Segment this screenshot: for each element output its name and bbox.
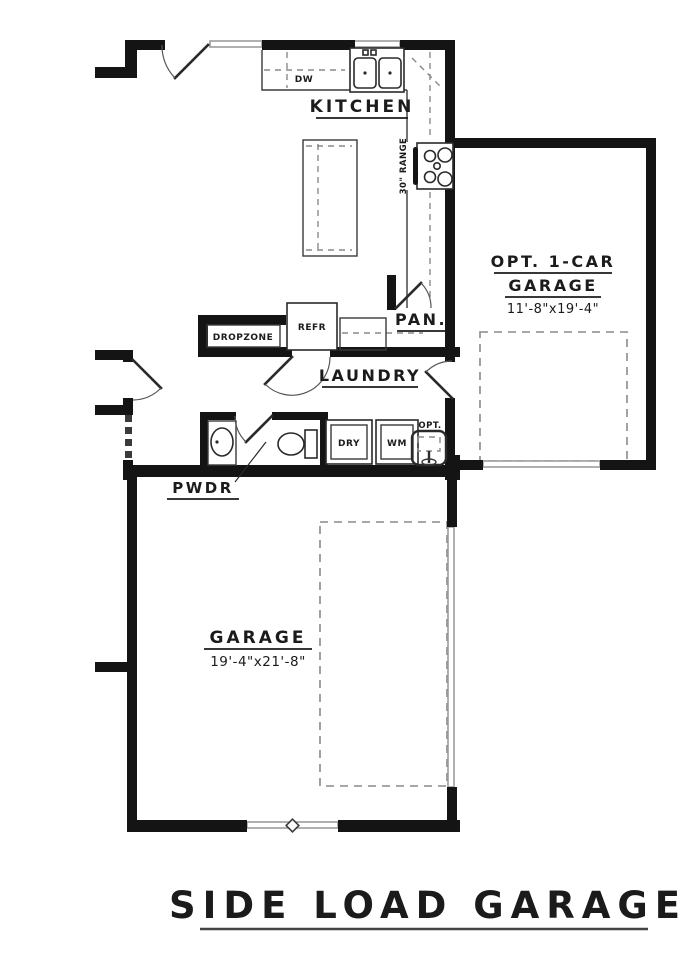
- wall-opt-garage-right: [646, 138, 656, 470]
- kitchen-label-group: KITCHEN: [310, 97, 415, 118]
- range-label: 30" RANGE: [399, 138, 409, 195]
- laundry-label-group: LAUNDRY: [319, 366, 421, 387]
- hall-door: [133, 360, 161, 400]
- garage-dimensions: 19'-4"x21'-8": [210, 654, 306, 670]
- garage-car-space-outline: [320, 522, 447, 786]
- wall-garage-bottom-right: [338, 820, 460, 832]
- kitchen-sink: [350, 48, 404, 92]
- wall: [123, 398, 133, 415]
- powder-label: PWDR: [172, 479, 234, 497]
- entry-door: [162, 45, 208, 78]
- opt-garage-label-line1: OPT. 1-CAR: [491, 252, 616, 271]
- dishwasher-label: DW: [295, 75, 313, 85]
- dryer-label: DRY: [338, 439, 360, 449]
- wall-pantry-jamb: [387, 275, 396, 310]
- floor-plan-drawing: KITCHEN OPT. 1-CAR GARAGE 11'-8"x19'-4" …: [0, 0, 700, 979]
- kitchen-island: [303, 140, 357, 256]
- pantry-label: PAN.: [395, 310, 447, 329]
- wall-opt-garage-bottom: [600, 460, 656, 470]
- wall-opt-garage-top: [455, 138, 656, 148]
- garage-window-marker: [286, 819, 299, 832]
- wall: [262, 40, 355, 50]
- wall-laundry-top-left: [198, 347, 292, 357]
- kitchen-label: KITCHEN: [310, 97, 415, 117]
- wall-dropzone-top: [198, 315, 286, 325]
- floor-plan-page: KITCHEN OPT. 1-CAR GARAGE 11'-8"x19'-4" …: [0, 0, 700, 979]
- wall-powder-top-right: [272, 412, 328, 420]
- plan-title: SIDE LOAD GARAGE: [169, 884, 687, 927]
- washer-label: WM: [387, 439, 407, 449]
- laundry-label: LAUNDRY: [319, 366, 421, 385]
- opt-garage-label-group: OPT. 1-CAR GARAGE 11'-8"x19'-4": [491, 252, 616, 317]
- kitchen-window: [353, 41, 400, 47]
- opt-garage-car-space-outline: [480, 332, 627, 461]
- wall-powder-left: [200, 412, 208, 468]
- opt-garage-dimensions: 11'-8"x19'-4": [507, 302, 599, 317]
- entry-sidelight-window: [210, 41, 262, 47]
- pantry-label-group: PAN.: [395, 310, 447, 331]
- range: [413, 143, 453, 189]
- wall-kitchen-right: [445, 40, 455, 148]
- powder-vanity-sink: [208, 421, 236, 465]
- refrigerator-label: REFR: [298, 323, 326, 333]
- powder-door: [235, 416, 272, 442]
- garage-label: GARAGE: [210, 628, 307, 648]
- wall-garage-stub: [95, 662, 127, 672]
- wall: [125, 40, 165, 50]
- side-load-garage-door-opening: [448, 527, 454, 787]
- counter-segment: [340, 318, 386, 350]
- wall-laundry-top-right: [330, 347, 460, 357]
- wall-garage-left: [127, 465, 137, 832]
- toilet: [278, 430, 317, 458]
- plan-title-group: SIDE LOAD GARAGE: [169, 884, 687, 929]
- opt-sink-label: OPT.: [418, 421, 441, 431]
- pantry-door: [396, 283, 431, 308]
- wall-garage-top: [127, 465, 460, 477]
- opt-garage-label-line2: GARAGE: [508, 276, 597, 295]
- dropzone-label: DROPZONE: [213, 333, 274, 343]
- wall-garage-bottom-left: [127, 820, 247, 832]
- laundry-garage-door: [426, 361, 452, 398]
- wall-garage-right-lower: [447, 787, 457, 832]
- opt-garage-door-opening: [483, 461, 600, 467]
- wall-garage-right-upper: [447, 477, 457, 527]
- garage-label-group: GARAGE 19'-4"x21'-8": [204, 628, 312, 670]
- wall-hall-stub-lower: [95, 405, 125, 415]
